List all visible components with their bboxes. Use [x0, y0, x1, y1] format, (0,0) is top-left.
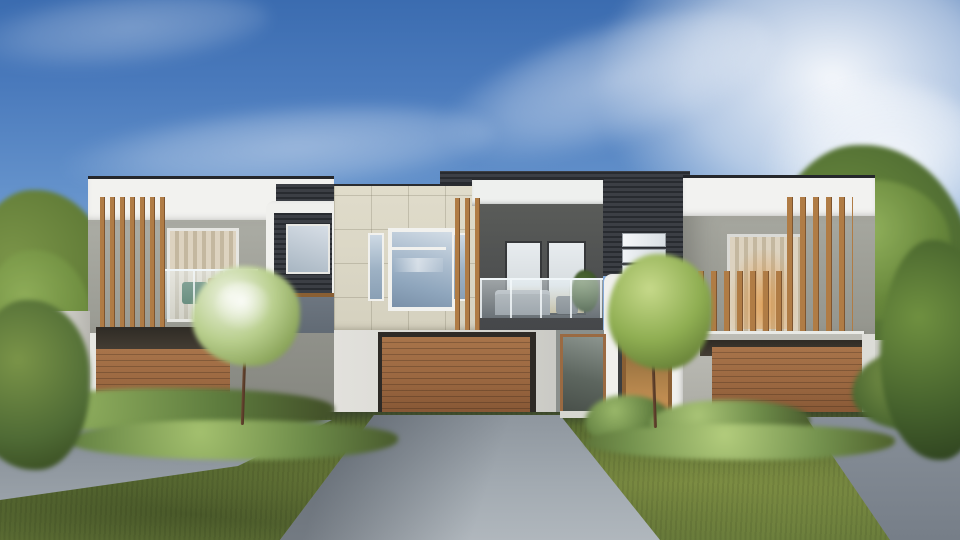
left-batten-screen — [100, 197, 168, 340]
center-garage-door — [382, 337, 530, 416]
hedge-row-left-front — [68, 420, 398, 460]
center-balustrade — [480, 278, 603, 318]
center-tree-canopy — [608, 254, 712, 370]
hedge-row-right-front — [585, 424, 895, 460]
center-window-transom-bar — [390, 247, 446, 250]
center-window-reflection — [393, 258, 443, 272]
right-batten-screen-tall — [787, 197, 853, 333]
portal-left-window — [286, 224, 330, 274]
center-window-left-slot — [368, 233, 384, 301]
blossom-tree-highlights — [214, 282, 270, 330]
pier-slot-window-1 — [622, 233, 666, 247]
architectural-render — [0, 0, 960, 540]
center-batten-screen — [455, 198, 482, 330]
center-balcony-fascia — [472, 178, 604, 206]
